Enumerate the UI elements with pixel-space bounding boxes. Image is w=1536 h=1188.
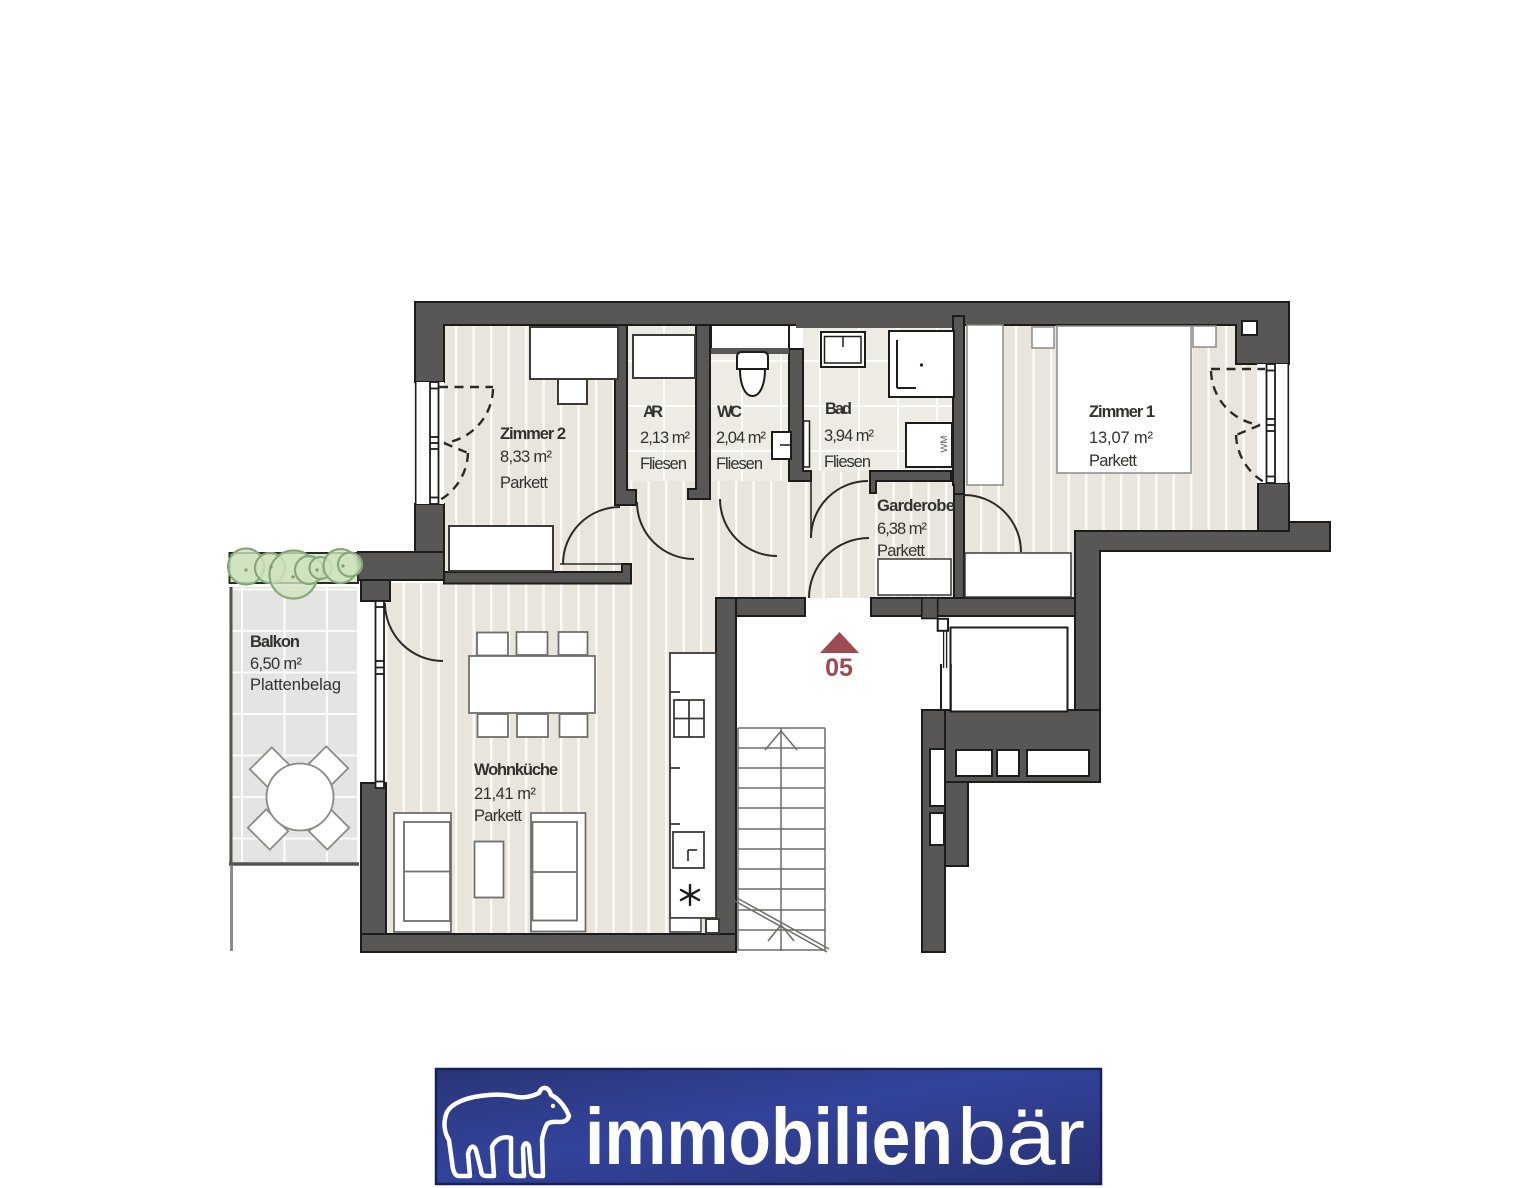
svg-text:6,50 m²: 6,50 m²: [250, 655, 303, 673]
svg-text:WC: WC: [717, 403, 742, 421]
svg-text:AR: AR: [643, 403, 663, 421]
svg-text:Fliesen: Fliesen: [824, 453, 871, 471]
svg-text:Wohnküche: Wohnküche: [474, 761, 558, 779]
svg-text:Fliesen: Fliesen: [716, 455, 763, 473]
svg-text:8,33 m²: 8,33 m²: [500, 448, 553, 466]
svg-text:Fliesen: Fliesen: [640, 455, 687, 473]
svg-text:Parkett: Parkett: [500, 474, 548, 492]
svg-text:Plattenbelag: Plattenbelag: [250, 676, 341, 694]
svg-text:Parkett: Parkett: [877, 542, 925, 560]
svg-text:21,41 m²: 21,41 m²: [474, 785, 537, 803]
svg-text:Parkett: Parkett: [1089, 452, 1137, 470]
svg-text:05: 05: [825, 654, 853, 682]
svg-text:2,13 m²: 2,13 m²: [640, 429, 691, 447]
svg-text:Zimmer 1: Zimmer 1: [1089, 403, 1155, 421]
svg-text:bär: bär: [957, 1092, 1085, 1181]
svg-text:immobilien: immobilien: [585, 1092, 953, 1181]
svg-text:3,94 m²: 3,94 m²: [824, 427, 875, 445]
svg-text:13,07 m²: 13,07 m²: [1089, 429, 1154, 447]
svg-text:Garderobe: Garderobe: [877, 497, 955, 515]
svg-text:WM: WM: [939, 435, 950, 452]
svg-text:Parkett: Parkett: [474, 807, 522, 825]
svg-text:Bad: Bad: [825, 400, 852, 418]
svg-text:Balkon: Balkon: [250, 633, 300, 651]
svg-text:2,04 m²: 2,04 m²: [716, 429, 767, 447]
svg-text:Zimmer 2: Zimmer 2: [500, 425, 566, 443]
svg-text:6,38 m²: 6,38 m²: [877, 520, 928, 538]
